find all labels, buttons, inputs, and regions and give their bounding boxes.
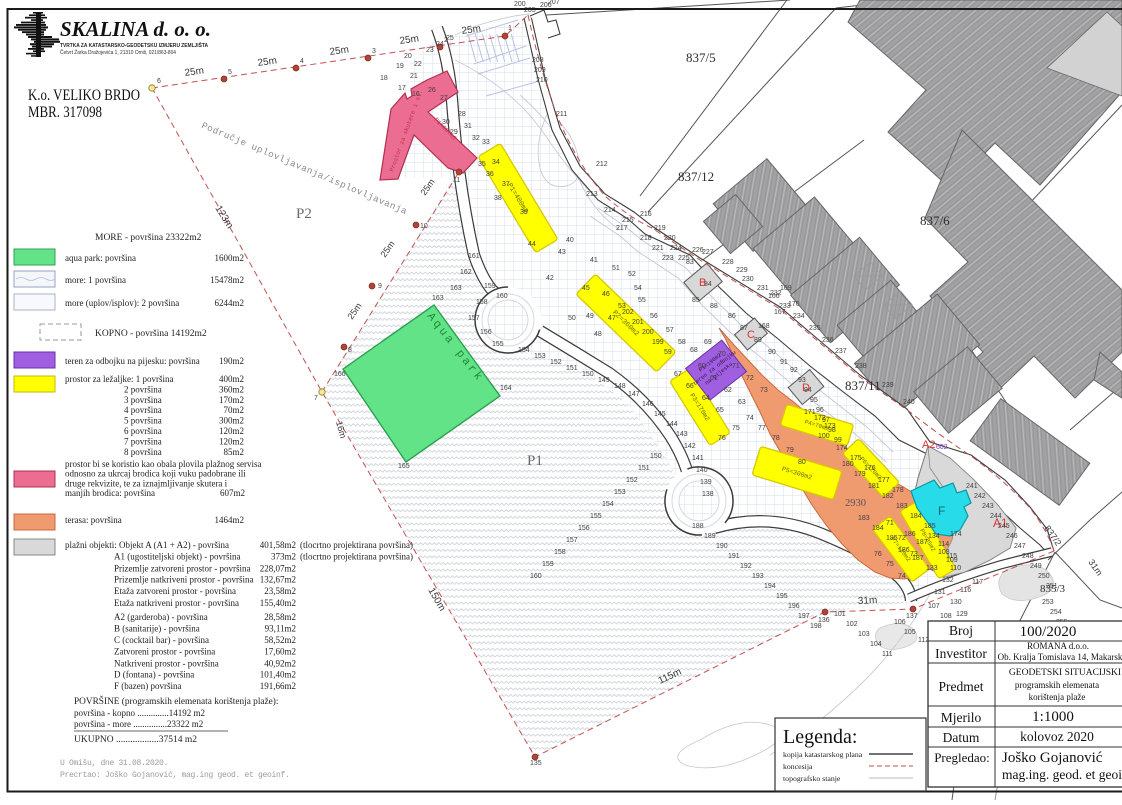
svg-text:6244m2: 6244m2	[214, 298, 244, 308]
svg-text:19: 19	[396, 63, 404, 70]
svg-text:73: 73	[760, 387, 768, 394]
svg-text:178: 178	[892, 487, 904, 494]
svg-text:topografsko stanje: topografsko stanje	[783, 774, 841, 783]
svg-text:166: 166	[768, 293, 780, 300]
svg-text:153: 153	[534, 353, 546, 360]
svg-text:147: 147	[628, 391, 640, 398]
svg-text:P2: P2	[296, 206, 312, 222]
svg-text:56: 56	[650, 313, 658, 320]
svg-text:159: 159	[484, 283, 496, 290]
svg-text:241: 241	[966, 483, 978, 490]
svg-text:153: 153	[614, 489, 626, 496]
svg-text:73: 73	[910, 551, 918, 558]
svg-text:209: 209	[534, 67, 546, 74]
svg-text:31: 31	[464, 123, 472, 130]
svg-text:KOPNO - površina 14192m2: KOPNO - površina 14192m2	[95, 329, 207, 339]
svg-text:Četvrt Žarka Dražojevića 1, 21: Četvrt Žarka Dražojevića 1, 21310 Omiš, …	[60, 48, 176, 56]
svg-text:107: 107	[928, 603, 940, 610]
svg-text:179: 179	[854, 471, 866, 478]
svg-text:aqua park: površina: aqua park: površina	[65, 253, 136, 263]
svg-text:221: 221	[652, 245, 664, 252]
svg-text:40: 40	[566, 237, 574, 244]
svg-text:193: 193	[752, 573, 764, 580]
svg-text:70: 70	[718, 351, 726, 358]
svg-text:more (uplov/isplov): 2 površin: more (uplov/isplov): 2 površina	[65, 298, 179, 308]
svg-text:184: 184	[910, 513, 922, 520]
svg-text:6 površina: 6 površina	[124, 426, 162, 436]
svg-text:166: 166	[334, 371, 346, 378]
svg-text:191: 191	[728, 553, 740, 560]
svg-text:208: 208	[532, 57, 544, 64]
svg-text:102: 102	[846, 621, 858, 628]
svg-text:228: 228	[722, 259, 734, 266]
svg-text:200: 200	[642, 329, 654, 336]
svg-text:F (bazen) površina: F (bazen) površina	[114, 681, 181, 691]
svg-text:253: 253	[1042, 599, 1054, 606]
svg-text:101: 101	[834, 611, 846, 618]
svg-text:29: 29	[450, 129, 458, 136]
svg-text:površina - more ..............: površina - more ...............23322 m2	[74, 719, 203, 729]
svg-text:218: 218	[640, 235, 652, 242]
svg-text:Legenda:: Legenda:	[783, 726, 857, 748]
svg-text:144: 144	[666, 421, 678, 428]
svg-text:219: 219	[654, 225, 666, 232]
svg-text:137: 137	[906, 613, 918, 620]
svg-text:183: 183	[896, 503, 908, 510]
svg-text:172: 172	[814, 415, 826, 422]
svg-text:373m2: 373m2	[271, 552, 296, 562]
svg-text:151: 151	[638, 465, 650, 472]
svg-text:224: 224	[670, 245, 682, 252]
svg-text:234: 234	[793, 313, 805, 320]
svg-text:52: 52	[628, 271, 636, 278]
svg-text:GEODETSKI SITUACIJSKI NACRT: GEODETSKI SITUACIJSKI NACRT	[1009, 668, 1122, 678]
svg-text:63: 63	[738, 399, 746, 406]
svg-text:43: 43	[558, 249, 566, 256]
svg-text:149: 149	[598, 377, 610, 384]
svg-text:7: 7	[314, 395, 318, 402]
svg-text:85m2: 85m2	[223, 447, 244, 457]
svg-text:Ob. Kralja Tomislava 14, Makar: Ob. Kralja Tomislava 14, Makarska	[998, 652, 1122, 662]
svg-text:Pregledao:: Pregledao:	[934, 750, 990, 765]
svg-text:korištenja plaže: korištenja plaže	[1029, 692, 1086, 702]
svg-text:151: 151	[566, 365, 578, 372]
svg-text:71: 71	[886, 520, 894, 527]
svg-text:28,58m2: 28,58m2	[264, 612, 296, 622]
svg-text:45: 45	[582, 285, 590, 292]
svg-text:837/11: 837/11	[845, 378, 881, 393]
svg-text:176: 176	[864, 465, 876, 472]
svg-text:86: 86	[728, 313, 736, 320]
svg-text:Prizemlje natkriveni prostor -: Prizemlje natkriveni prostor - površina	[114, 575, 253, 585]
svg-text:SKALINA d. o. o.: SKALINA d. o. o.	[60, 17, 211, 41]
svg-text:U Omišu, dne 31.08.2020.: U Omišu, dne 31.08.2020.	[60, 759, 168, 768]
svg-text:214: 214	[604, 207, 616, 214]
svg-text:142: 142	[684, 443, 696, 450]
svg-text:186: 186	[898, 547, 910, 554]
svg-text:216: 216	[640, 211, 652, 218]
svg-text:108: 108	[940, 613, 952, 620]
svg-text:Joško Gojanović: Joško Gojanović	[1002, 750, 1103, 766]
svg-text:MORE - površina 23322m2: MORE - površina 23322m2	[95, 233, 202, 243]
svg-text:2930: 2930	[845, 498, 866, 509]
svg-text:174: 174	[836, 445, 848, 452]
svg-text:40,92m2: 40,92m2	[264, 658, 296, 668]
svg-text:39: 39	[520, 209, 528, 216]
svg-text:131: 131	[934, 589, 946, 596]
svg-text:139: 139	[700, 479, 712, 486]
svg-text:72: 72	[746, 375, 754, 382]
svg-text:17,60m2: 17,60m2	[264, 647, 296, 657]
svg-text:155,40m2: 155,40m2	[260, 598, 296, 608]
svg-text:23,58m2: 23,58m2	[264, 586, 296, 596]
svg-text:96: 96	[816, 407, 824, 414]
svg-text:247: 247	[1014, 543, 1026, 550]
svg-text:190: 190	[716, 543, 728, 550]
svg-text:41: 41	[590, 257, 598, 264]
svg-text:117: 117	[972, 579, 983, 586]
svg-text:92: 92	[790, 367, 798, 374]
svg-text:116: 116	[960, 587, 971, 594]
svg-text:130: 130	[950, 599, 962, 606]
svg-text:239: 239	[882, 382, 894, 389]
svg-text:kolovoz 2020: kolovoz 2020	[1020, 729, 1094, 744]
svg-text:837/5: 837/5	[686, 50, 716, 65]
svg-text:Prizemlje zatvoreni prostor -: Prizemlje zatvoreni prostor - površina	[114, 563, 250, 573]
svg-text:189: 189	[704, 533, 716, 540]
svg-text:24: 24	[436, 41, 444, 48]
svg-text:48: 48	[594, 331, 602, 338]
svg-text:167: 167	[774, 309, 786, 316]
svg-text:155: 155	[492, 341, 504, 348]
svg-text:66: 66	[686, 383, 694, 390]
svg-text:184: 184	[872, 525, 884, 532]
svg-text:A2 (garderoba) - površina: A2 (garderoba) - površina	[114, 612, 208, 622]
svg-text:173: 173	[824, 423, 836, 430]
svg-text:202: 202	[622, 309, 634, 316]
svg-text:196: 196	[788, 603, 800, 610]
svg-text:22: 22	[414, 61, 422, 68]
svg-text:120m2: 120m2	[219, 436, 244, 446]
svg-text:230: 230	[742, 276, 754, 283]
svg-text:25: 25	[446, 35, 454, 42]
svg-text:132: 132	[942, 577, 954, 584]
svg-text:197: 197	[798, 613, 810, 620]
svg-text:89: 89	[754, 337, 762, 344]
svg-text:34: 34	[492, 159, 500, 166]
svg-text:Etaža zatvoreni prostor - povr: Etaža zatvoreni prostor - površina	[114, 586, 236, 596]
svg-text:181: 181	[868, 483, 880, 490]
svg-text:160: 160	[530, 573, 542, 580]
svg-text:76: 76	[718, 435, 726, 442]
svg-text:157: 157	[566, 537, 578, 544]
svg-text:58: 58	[678, 339, 686, 346]
svg-text:26: 26	[428, 87, 436, 94]
svg-text:105: 105	[904, 629, 916, 636]
svg-text:602: 602	[936, 444, 948, 451]
svg-text:Precrtao: Joško Gojanović, mag: Precrtao: Joško Gojanović, mag.ing geod.…	[60, 771, 290, 780]
svg-text:207: 207	[548, 0, 560, 6]
svg-text:77: 77	[758, 425, 766, 432]
svg-text:79: 79	[786, 447, 794, 454]
svg-text:5: 5	[228, 69, 232, 76]
svg-text:150: 150	[582, 371, 594, 378]
svg-text:163: 163	[450, 285, 462, 292]
svg-text:168: 168	[758, 323, 770, 330]
svg-text:129: 129	[956, 611, 968, 618]
svg-text:185: 185	[924, 523, 936, 530]
svg-text:229: 229	[736, 267, 748, 274]
svg-text:170m2: 170m2	[219, 395, 244, 405]
svg-text:10: 10	[420, 223, 428, 230]
svg-text:8 površina: 8 površina	[124, 447, 162, 457]
svg-text:more: 1 površina: more: 1 površina	[65, 275, 126, 285]
svg-text:140: 140	[696, 467, 708, 474]
svg-text:177: 177	[878, 477, 890, 484]
svg-text:TVRTKA ZA KATASTARSKO-GEODETSK: TVRTKA ZA KATASTARSKO-GEODETSKU IZMJERU …	[60, 41, 209, 49]
svg-text:B (sanitarije) - površina: B (sanitarije) - površina	[114, 624, 200, 634]
svg-text:100: 100	[818, 433, 830, 440]
svg-text:243: 243	[982, 503, 994, 510]
svg-text:2 površina: 2 površina	[124, 384, 162, 394]
svg-text:156: 156	[480, 329, 492, 336]
svg-text:44: 44	[528, 241, 536, 248]
svg-text:74: 74	[746, 415, 754, 422]
svg-text:prostor bi se koristio kao oba: prostor bi se koristio kao obala plovila…	[65, 459, 261, 469]
svg-text:211: 211	[556, 111, 567, 118]
svg-text:159: 159	[542, 561, 554, 568]
svg-text:120m2: 120m2	[219, 426, 244, 436]
svg-text:57: 57	[666, 327, 674, 334]
svg-text:250: 250	[1038, 573, 1050, 580]
svg-text:300m2: 300m2	[219, 416, 244, 426]
svg-text:199: 199	[652, 339, 664, 346]
svg-text:teren za odbojku na pijesku: p: teren za odbojku na pijesku: površina	[65, 356, 200, 366]
svg-text:3: 3	[372, 48, 376, 55]
svg-text:87: 87	[740, 325, 748, 332]
svg-text:236: 236	[822, 337, 834, 344]
svg-text:156: 156	[578, 525, 590, 532]
svg-text:188: 188	[692, 523, 704, 530]
svg-text:245: 245	[998, 523, 1010, 530]
svg-text:187: 187	[916, 539, 928, 546]
svg-text:182: 182	[882, 493, 894, 500]
svg-text:154: 154	[602, 501, 614, 508]
svg-text:C (cocktail bar) - površina: C (cocktail bar) - površina	[114, 635, 209, 645]
svg-text:7 površina: 7 površina	[124, 436, 162, 446]
svg-text:Zatvoreni prostor - površina: Zatvoreni prostor - površina	[114, 647, 215, 657]
svg-text:1:1000: 1:1000	[1032, 709, 1074, 725]
svg-text:Natkriveni prostor - površina: Natkriveni prostor - površina	[114, 658, 219, 668]
svg-text:164: 164	[500, 385, 512, 392]
svg-text:62: 62	[724, 387, 732, 394]
svg-text:Broj: Broj	[949, 623, 973, 638]
svg-text:135: 135	[530, 760, 542, 767]
svg-text:67: 67	[674, 371, 682, 378]
svg-text:133: 133	[926, 565, 938, 572]
svg-text:607m2: 607m2	[220, 488, 245, 498]
svg-text:60: 60	[698, 363, 706, 370]
svg-text:50: 50	[568, 315, 576, 322]
svg-text:158: 158	[476, 299, 488, 306]
svg-text:111: 111	[882, 651, 893, 658]
svg-text:37: 37	[502, 181, 510, 188]
svg-text:33: 33	[482, 139, 490, 146]
svg-text:213: 213	[586, 191, 598, 198]
svg-text:49: 49	[586, 313, 594, 320]
svg-text:108: 108	[938, 549, 950, 556]
svg-text:400m2: 400m2	[219, 374, 244, 384]
svg-text:71: 71	[732, 363, 740, 370]
svg-text:MBR. 317098: MBR. 317098	[28, 104, 102, 121]
svg-text:20: 20	[404, 53, 412, 60]
svg-text:odnosno za ukrcaj brodica koji: odnosno za ukrcaj brodica koji vuku pado…	[65, 469, 246, 479]
svg-text:190m2: 190m2	[219, 356, 244, 366]
svg-text:11: 11	[453, 177, 460, 184]
svg-text:3 površina: 3 površina	[124, 395, 162, 405]
svg-text:134: 134	[928, 533, 940, 540]
svg-text:212: 212	[596, 161, 608, 168]
svg-text:4: 4	[300, 58, 304, 65]
svg-text:231: 231	[757, 285, 769, 292]
svg-text:100/2020: 100/2020	[1020, 624, 1077, 640]
svg-text:1: 1	[508, 25, 512, 32]
svg-text:83: 83	[686, 259, 694, 266]
svg-text:103: 103	[858, 631, 870, 638]
svg-text:146: 146	[642, 401, 654, 408]
svg-text:76: 76	[874, 551, 882, 558]
svg-text:85: 85	[692, 297, 700, 304]
svg-text:55: 55	[638, 297, 646, 304]
svg-text:70m2: 70m2	[223, 405, 244, 415]
svg-text:104: 104	[870, 641, 882, 648]
svg-text:84: 84	[704, 281, 712, 288]
svg-text:78: 78	[772, 435, 780, 442]
svg-text:36: 36	[486, 171, 494, 178]
svg-text:1600m2: 1600m2	[214, 253, 244, 263]
svg-text:148: 148	[614, 383, 626, 390]
svg-text:80: 80	[798, 459, 806, 466]
svg-text:27: 27	[440, 95, 448, 102]
svg-text:191,66m2: 191,66m2	[260, 681, 296, 691]
svg-text:223: 223	[662, 255, 674, 262]
svg-text:94: 94	[804, 387, 812, 394]
svg-text:Mjerilo: Mjerilo	[941, 710, 982, 725]
svg-text:244: 244	[990, 513, 1002, 520]
svg-text:235: 235	[809, 325, 821, 332]
svg-text:mag.ing. geod. et geoinf.: mag.ing. geod. et geoinf.	[1002, 767, 1122, 782]
svg-text:Investitor: Investitor	[935, 646, 987, 661]
svg-text:ROMANA d.o.o.: ROMANA d.o.o.	[1027, 641, 1089, 651]
svg-text:158: 158	[554, 549, 566, 556]
svg-text:93: 93	[798, 377, 806, 384]
svg-text:180: 180	[842, 461, 854, 468]
svg-text:101,40m2: 101,40m2	[260, 670, 296, 680]
svg-text:69: 69	[704, 339, 712, 346]
svg-text:170: 170	[788, 301, 800, 308]
svg-text:152: 152	[550, 359, 562, 366]
svg-text:157: 157	[468, 315, 480, 322]
svg-text:90: 90	[768, 349, 776, 356]
svg-text:15478m2: 15478m2	[210, 275, 244, 285]
svg-text:UKUPNO ..................37514: UKUPNO ..................37514 m2	[74, 735, 197, 745]
svg-text:A1 (ugostiteljski objekt) - po: A1 (ugostiteljski objekt) - površina	[114, 552, 240, 562]
svg-text:835/3: 835/3	[1040, 583, 1066, 595]
svg-text:132,67m2: 132,67m2	[260, 575, 296, 585]
svg-text:plažni objekti: Objekt A (A1 +: plažni objekti: Objekt A (A1 + A2) - pov…	[65, 540, 229, 550]
svg-text:114: 114	[938, 541, 949, 548]
svg-text:201: 201	[632, 319, 644, 326]
svg-text:druge rekvizite, te za iznajml: druge rekvizite, te za iznajmljivanje sk…	[65, 478, 228, 488]
svg-text:248: 248	[1022, 553, 1034, 560]
svg-text:manjih brodica: površina: manjih brodica: površina	[65, 488, 155, 498]
svg-text:217: 217	[616, 225, 628, 232]
svg-text:6: 6	[157, 78, 161, 85]
svg-text:837/6: 837/6	[920, 213, 950, 228]
svg-text:terasa: površina: terasa: površina	[65, 515, 122, 525]
svg-text:64: 64	[702, 395, 710, 402]
svg-text:106: 106	[894, 619, 906, 626]
svg-text:88: 88	[710, 303, 718, 310]
svg-text:242: 242	[974, 493, 986, 500]
svg-text:165: 165	[398, 463, 410, 470]
svg-text:Datum: Datum	[943, 730, 980, 745]
svg-text:Predmet: Predmet	[939, 679, 984, 694]
svg-text:Etaža natkriveni prostor - pov: Etaža natkriveni prostor - površina	[114, 598, 239, 608]
svg-text:47: 47	[608, 315, 616, 322]
svg-text:401,58m2: 401,58m2	[260, 540, 296, 550]
svg-text:246: 246	[1006, 533, 1018, 540]
svg-text:32: 32	[472, 135, 480, 142]
svg-text:42: 42	[546, 275, 554, 282]
svg-text:138: 138	[702, 491, 714, 498]
svg-text:4 površina: 4 površina	[124, 405, 162, 415]
svg-text:161: 161	[468, 253, 480, 260]
svg-text:(tlocrtno projektirana površin: (tlocrtno projektirana površina)	[300, 552, 413, 562]
svg-text:8: 8	[348, 347, 352, 354]
svg-text:31m: 31m	[858, 595, 878, 607]
svg-text:58,52m2: 58,52m2	[264, 635, 296, 645]
svg-text:kopija katastarskog plana: kopija katastarskog plana	[783, 750, 863, 759]
svg-text:65: 65	[716, 407, 724, 414]
svg-text:145: 145	[654, 411, 666, 418]
svg-text:360m2: 360m2	[219, 384, 244, 394]
svg-text:F: F	[938, 504, 945, 518]
svg-text:194: 194	[764, 583, 776, 590]
svg-text:150: 150	[650, 453, 662, 460]
svg-text:23: 23	[426, 47, 434, 54]
svg-text:18: 18	[380, 75, 388, 82]
svg-text:195: 195	[776, 593, 788, 600]
svg-text:51: 51	[612, 265, 620, 272]
svg-text:192: 192	[740, 563, 752, 570]
svg-text:1464m2: 1464m2	[214, 515, 244, 525]
svg-text:215: 215	[622, 217, 634, 224]
svg-text:61: 61	[710, 375, 718, 382]
svg-text:A2: A2	[922, 439, 935, 451]
svg-text:183: 183	[858, 515, 870, 522]
svg-text:163: 163	[432, 295, 444, 302]
svg-text:185: 185	[886, 535, 898, 542]
svg-text:837/12: 837/12	[678, 169, 714, 184]
svg-text:154: 154	[518, 347, 530, 354]
svg-text:28: 28	[458, 111, 466, 118]
svg-text:16: 16	[412, 91, 420, 98]
svg-text:93,11m2: 93,11m2	[265, 624, 296, 634]
svg-text:površina - kopno .............: površina - kopno ..............14192 m2	[74, 708, 205, 718]
svg-text:38: 38	[494, 195, 502, 202]
svg-text:210: 210	[536, 77, 548, 84]
